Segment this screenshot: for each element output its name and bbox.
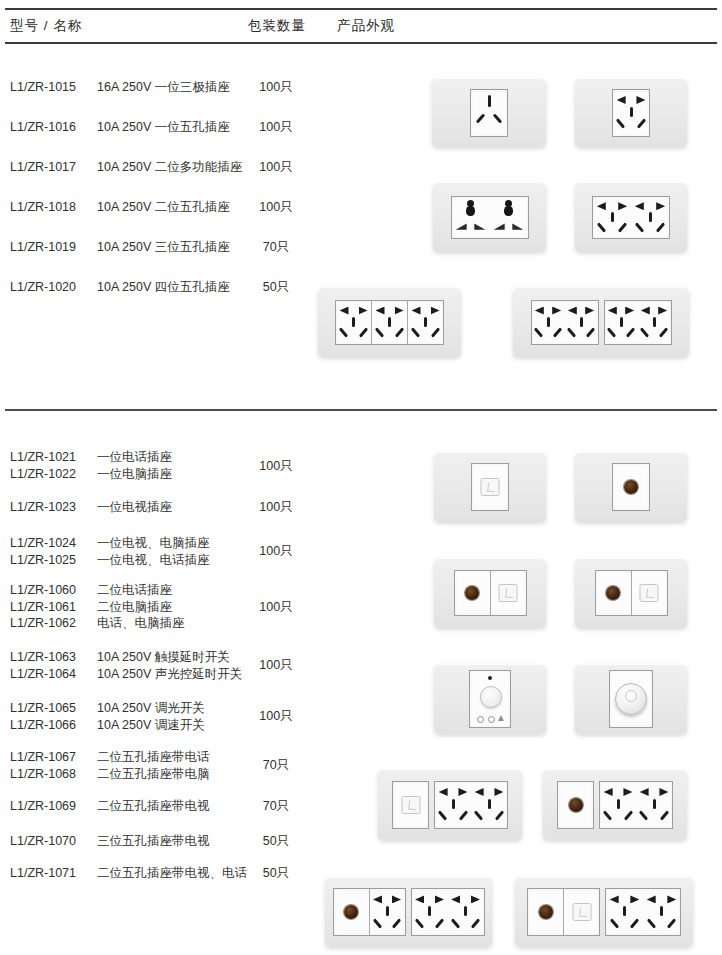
module-box [557,781,594,829]
model-number: L1/ZR-1069 [10,798,96,814]
model-number: L1/ZR-1018 [10,199,96,215]
module-box [470,89,508,137]
product-name: 一位电脑插座 [97,466,172,482]
product-name: 一位电视、电脑插座 [97,535,210,551]
module-box [454,570,527,616]
product-name: 10A 250V 四位五孔插座 [97,279,230,295]
product-name: 10A 250V 三位五孔插座 [97,239,230,255]
tv-socket-icon [528,889,563,935]
phone-jack-icon [631,571,667,615]
module-box [612,89,650,137]
five-hole-socket-icon [643,889,680,935]
module-box [471,463,509,511]
model-number: L1/ZR-1021 [10,449,96,465]
plate-socket-universal-2gang [433,182,546,252]
pack-quantity: 50只 [243,833,309,849]
tv-socket-icon [613,464,649,510]
pack-quantity: 50只 [243,279,309,295]
five-hole-socket-icon [371,301,407,344]
product-name: 一位电视、电话插座 [97,552,210,568]
module-box [592,196,670,239]
product-name: 10A 250V 二位五孔插座 [97,199,230,215]
touch-switch-icon [470,671,510,727]
tv-socket-icon [455,571,490,615]
module-box [335,300,444,345]
pack-quantity: 100只 [243,119,309,135]
product-name: 10A 250V 调光开关 [97,700,205,716]
five-hole-socket-icon [565,301,598,344]
five-hole-socket-icon [605,301,638,344]
model-number: L1/ZR-1025 [10,552,96,568]
module-box [469,670,511,728]
model-number: L1/ZR-1019 [10,239,96,255]
module-box [595,570,668,616]
product-name: 10A 250V 二位多功能插座 [97,159,242,175]
pack-quantity: 100只 [243,543,309,559]
five-hole-socket-icon [636,782,672,828]
module-box [434,781,508,829]
model-number: L1/ZR-1071 [10,865,96,881]
five-hole-socket-icon [606,889,643,935]
column-header-quantity: 包装数量 [248,17,306,35]
plate-socket-5hole-4gang [513,287,689,357]
tv-socket-icon [334,889,369,935]
module-box [599,781,673,829]
module-box [605,888,681,936]
pack-quantity: 100只 [243,499,309,515]
pack-quantity: 100只 [243,159,309,175]
product-name: 一位电话插座 [97,449,172,465]
product-name: 16A 250V 一位三极插座 [97,79,230,95]
phone-jack-icon [563,889,599,935]
plate-socket-5hole-3gang [318,287,461,357]
phone-jack-icon [472,464,508,510]
five-hole-socket-icon [471,782,507,828]
product-name: 10A 250V 调速开关 [97,717,205,733]
pack-quantity: 100只 [243,708,309,724]
module-box [604,300,672,345]
module-box [527,888,600,936]
model-number: L1/ZR-1062 [10,615,96,631]
product-name: 10A 250V 触摸延时开关 [97,649,230,665]
product-name: 二位五孔插座带电视、电话 [97,865,247,881]
tv-socket-icon [558,782,593,828]
catalog-page: 型号 / 名称 包装数量 产品外观 L1/ZR-101516A 250V 一位三… [0,0,722,955]
five-hole-socket-icon [412,889,448,935]
plate-tv-jack-right [575,558,687,628]
model-number: L1/ZR-1070 [10,833,96,849]
five-hole-socket-icon [593,197,631,238]
pack-quantity: 100只 [243,458,309,474]
three-pin-socket-icon [471,90,507,136]
product-name: 10A 250V 一位五孔插座 [97,119,230,135]
pack-quantity: 100只 [243,657,309,673]
model-number: L1/ZR-1068 [10,766,96,782]
plate-jack-1gang [434,452,546,522]
plate-tv-jack-left [434,558,546,628]
product-name: 二位五孔插座带电脑 [97,766,210,782]
model-number: L1/ZR-1064 [10,666,96,682]
plate-tv-jack-plus-2x5hole [515,877,693,947]
phone-jack-icon [393,782,428,828]
model-number: L1/ZR-1022 [10,466,96,482]
header-rule [5,42,717,44]
phone-jack-icon [490,571,526,615]
model-number: L1/ZR-1015 [10,79,96,95]
product-name: 一位电视插座 [97,499,172,515]
model-number: L1/ZR-1066 [10,717,96,733]
tv-socket-icon [596,571,631,615]
model-number: L1/ZR-1061 [10,599,96,615]
model-number: L1/ZR-1023 [10,499,96,515]
five-hole-socket-icon [631,197,669,238]
pack-quantity: 70只 [243,239,309,255]
plate-socket-3pin-1gang [432,78,546,147]
plate-socket-5hole-2gang [575,182,687,252]
module-box [609,670,653,728]
universal-socket-icon [452,197,490,238]
product-name: 10A 250V 声光控延时开关 [97,666,242,682]
product-name: 电话、电脑插座 [97,615,185,631]
plate-touch-delay-switch [434,664,546,734]
plate-socket-5hole-1gang [575,78,687,147]
product-name: 二位电话插座 [97,582,172,598]
five-hole-socket-icon [448,889,484,935]
pack-quantity: 70只 [243,757,309,773]
five-hole-socket-icon [435,782,471,828]
module-box [411,888,485,936]
five-hole-socket-icon [407,301,443,344]
universal-socket-icon [490,197,528,238]
module-box [333,888,406,936]
model-number: L1/ZR-1065 [10,700,96,716]
plate-tv-plus-3x5hole [325,877,492,947]
product-name: 二位五孔插座带电视 [97,798,210,814]
column-header-appearance: 产品外观 [337,17,395,35]
model-number: L1/ZR-1024 [10,535,96,551]
pack-quantity: 70只 [243,798,309,814]
top-rule [5,8,717,10]
five-hole-socket-icon [532,301,565,344]
pack-quantity: 50只 [243,865,309,881]
module-box [612,463,650,511]
section-divider-rule [5,409,717,411]
rotary-knob-icon [610,671,652,727]
column-header-model: 型号 / 名称 [10,17,82,35]
five-hole-socket-icon [600,782,636,828]
pack-quantity: 100只 [243,79,309,95]
five-hole-socket-icon [336,301,371,344]
model-number: L1/ZR-1063 [10,649,96,665]
product-name: 三位五孔插座带电视 [97,833,210,849]
model-number: L1/ZR-1067 [10,749,96,765]
plate-tv-plus-2x5hole [543,769,687,840]
pack-quantity: 100只 [243,599,309,615]
pack-quantity: 100只 [243,199,309,215]
model-number: L1/ZR-1017 [10,159,96,175]
model-number: L1/ZR-1060 [10,582,96,598]
plate-tv-1gang [575,452,687,522]
module-box [451,196,529,239]
product-name: 二位电脑插座 [97,599,172,615]
module-box [531,300,599,345]
five-hole-socket-icon [369,889,405,935]
model-number: L1/ZR-1020 [10,279,96,295]
product-name: 二位五孔插座带电话 [97,749,210,765]
plate-rotary-dimmer-switch [575,664,687,734]
module-box [392,781,429,829]
model-number: L1/ZR-1016 [10,119,96,135]
five-hole-socket-icon [613,90,649,136]
plate-jack-plus-2x5hole [378,769,522,840]
five-hole-socket-icon [638,301,671,344]
